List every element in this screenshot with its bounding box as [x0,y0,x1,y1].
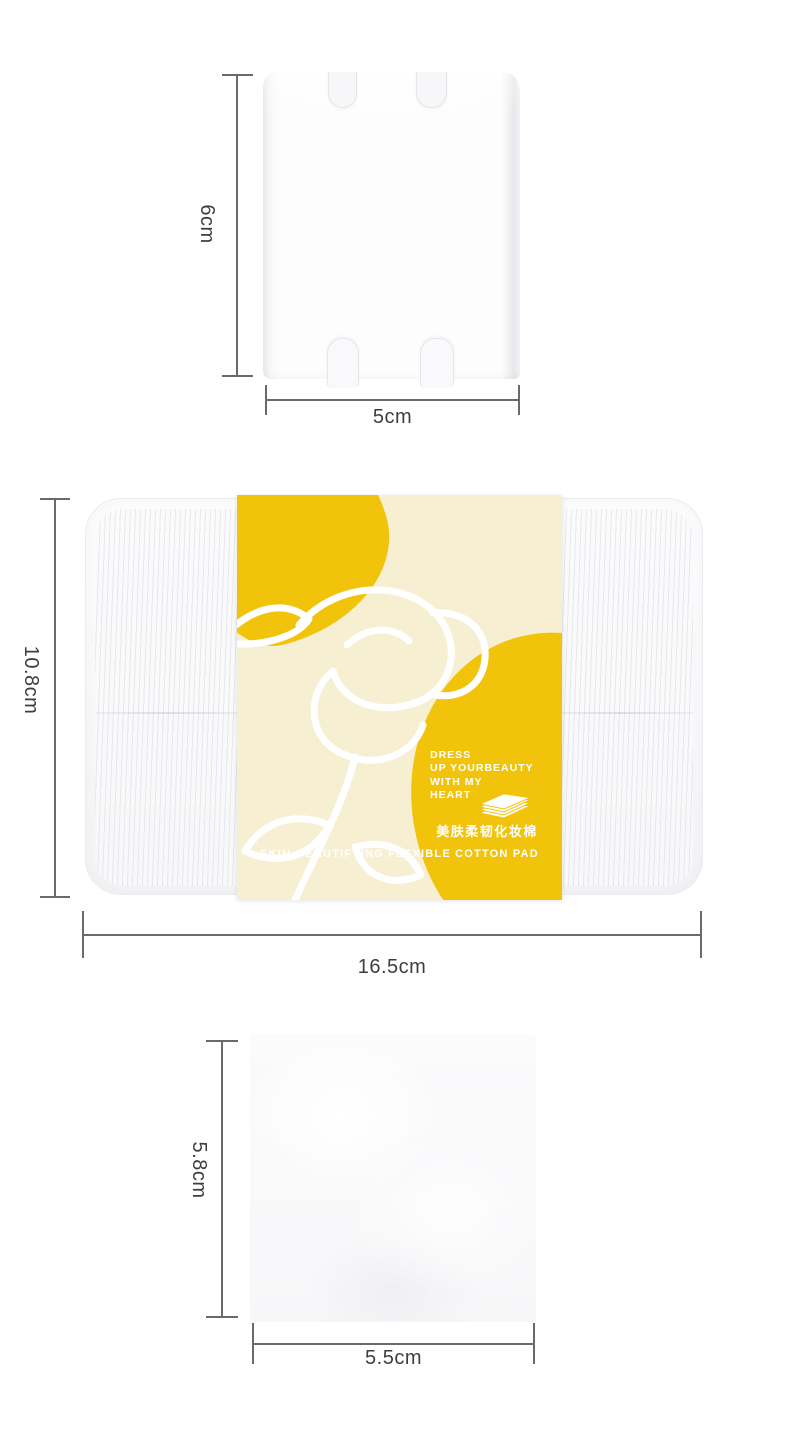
box-height-dim-line [54,499,56,898]
pad-bottom-tab-left [327,338,359,388]
top-width-dim-line [265,399,520,401]
top-height-dim-label: 6cm [197,204,217,243]
top-height-dim-tick-top [222,74,253,76]
tagline-line-3: WITH MY [430,776,534,789]
top-height-dim-line [236,75,238,377]
box-height-dim-label: 10.8cm [21,646,41,715]
product-name-en: SKIN-BEAUTIFYING FLEXIBLE COTTON PAD [249,848,550,860]
product-name-cn: 美肤柔韧化妆棉 [407,821,562,840]
square-height-dim-line [221,1041,223,1318]
square-height-dim-label: 5.8cm [189,1142,209,1199]
box-sleeve-label: DRESS UP YOURBEAUTY WITH MY HEART 美肤柔韧化妆… [237,495,562,900]
product-dimension-page: 6cm 5cm DRESS UP YOURBEAUTY WI [0,0,790,1449]
box-width-dim-label: 16.5cm [82,957,702,977]
square-width-dim-line [252,1343,535,1345]
single-cotton-pad-image [263,73,520,379]
square-height-dim-tick-top [206,1040,238,1042]
tagline-line-1: DRESS [430,749,534,762]
square-width-dim-label: 5.5cm [252,1348,535,1368]
pad-top-tab-right [416,72,447,108]
cotton-pad-stack-icon [473,793,535,820]
box-height-dim-tick-top [40,498,70,500]
box-width-dim-tick-right [700,911,702,958]
top-height-dim-tick-bottom [222,375,253,377]
box-height-dim-tick-bottom [40,896,70,898]
pad-top-tab-left [328,72,357,108]
pad-bottom-tab-right [420,338,454,388]
top-width-dim-label: 5cm [265,407,520,427]
box-pads-right [551,509,693,886]
box-pads-left [95,509,245,886]
box-width-dim-tick-left [82,911,84,958]
tagline-line-2: UP YOURBEAUTY [430,762,534,775]
square-height-dim-tick-bottom [206,1316,238,1318]
box-width-dim-line [82,934,702,936]
square-cotton-pad-image [250,1035,536,1322]
